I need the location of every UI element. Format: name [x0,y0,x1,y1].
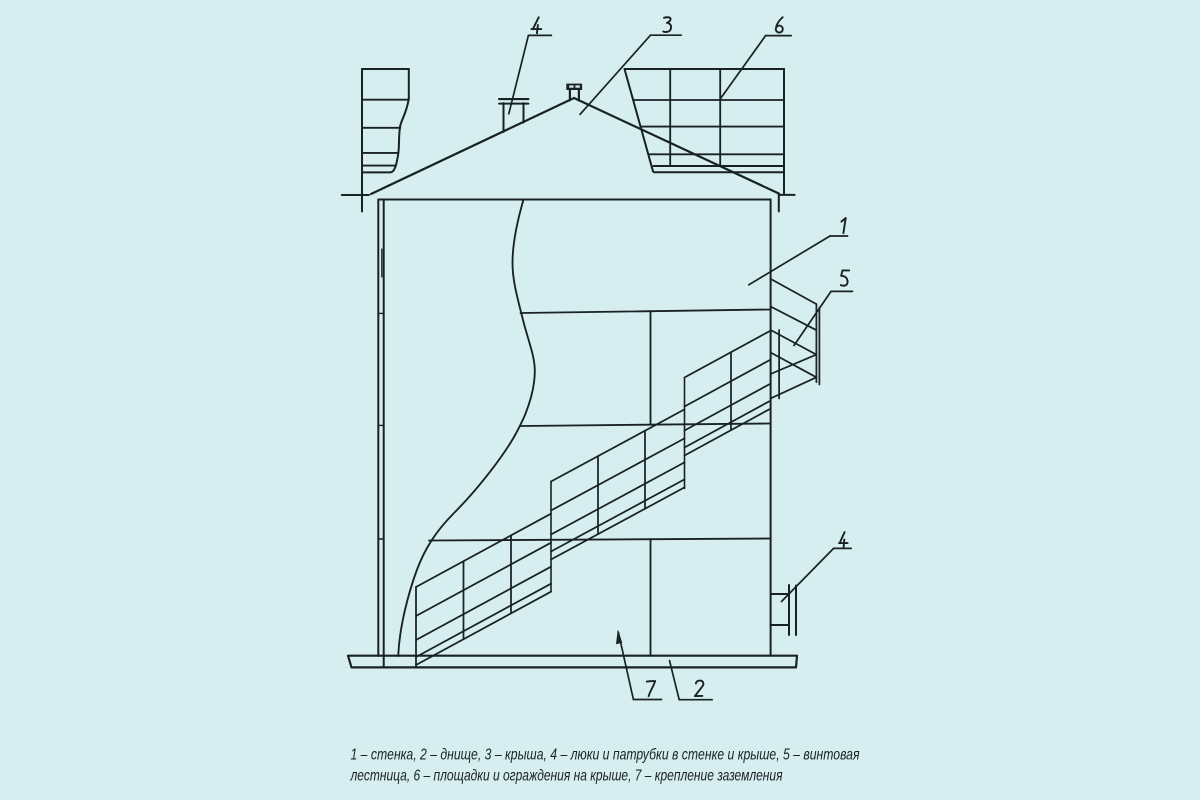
svg-text:лестница, 6 – площадки и ограж: лестница, 6 – площадки и ограждения на к… [350,768,783,785]
svg-text:1 – стенка, 2 – днище, 3 – кры: 1 – стенка, 2 – днище, 3 – крыша, 4 – лю… [351,747,860,764]
